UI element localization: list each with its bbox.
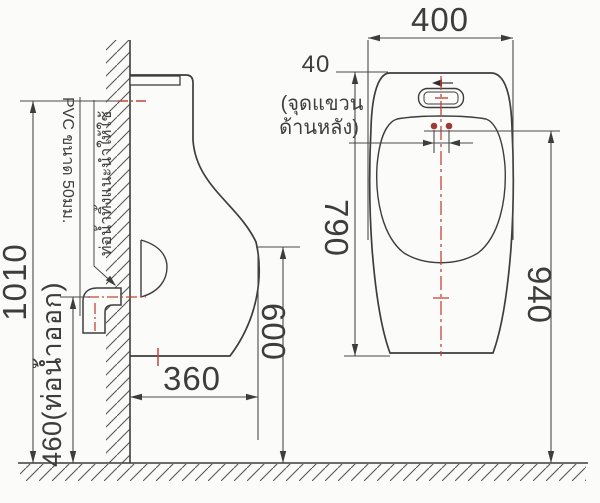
inlet-spud-side <box>130 76 180 85</box>
dim-depth-360: 360 <box>130 252 258 440</box>
drain-recess-side <box>141 240 167 297</box>
pipe-note-line1: ท่อน้ำทิ้งแนะนำให้ใช้ <box>94 111 115 256</box>
dim-940-value: 940 <box>521 266 558 324</box>
hang-note-line1: (จุดแขวน <box>281 93 364 116</box>
pipe-note-line2: PVC ขนาด 50มม. <box>59 97 76 223</box>
dim-rim-height-600: 600 <box>255 247 300 463</box>
dim-460-arrow-bottom <box>70 451 76 463</box>
floor-section <box>18 463 588 481</box>
dim-400-arrow-left <box>368 35 380 41</box>
dim-600-value: 600 <box>255 303 292 361</box>
dim-400-value: 400 <box>411 1 469 38</box>
hang-hole-left <box>431 123 438 130</box>
dim-790-arrow-top <box>352 72 358 84</box>
dim-hang-height-940: 940 <box>424 131 560 463</box>
dim-790-value: 790 <box>318 199 355 257</box>
dim-40-arrow-left <box>423 140 434 146</box>
floor-hatch <box>20 464 586 481</box>
dim-40-arrow-right <box>449 140 460 146</box>
dim-600-arrow-top <box>280 247 286 259</box>
dim-460-value: 460(ท่อน้ำออก) <box>32 282 67 467</box>
dim-40-value: 40 <box>302 51 331 78</box>
technical-drawing-canvas: ท่อน้ำทิ้งแนะนำให้ใช้ PVC ขนาด 50มม. 101… <box>0 0 600 503</box>
urinal-side-profile <box>130 75 259 356</box>
dim-1010-value: 1010 <box>0 243 33 320</box>
dim-790-arrow-bottom <box>352 344 358 356</box>
dim-1010-arrow-bottom <box>30 451 36 463</box>
hang-note-line2: ด้านหลัง) <box>279 117 359 139</box>
dim-940-arrow-bottom <box>548 451 554 463</box>
dim-outlet-height-460: 460(ท่อน้ำออก) <box>32 282 90 467</box>
dim-1010-arrow-top <box>30 101 36 113</box>
urinal-installation-drawing: ท่อน้ำทิ้งแนะนำให้ใช้ PVC ขนาด 50มม. 101… <box>0 0 600 503</box>
hang-hole-right <box>446 123 453 130</box>
dim-400-arrow-right <box>501 35 513 41</box>
front-view <box>370 73 514 356</box>
dim-360-value: 360 <box>163 360 221 397</box>
dim-460-arrow-top <box>70 297 76 309</box>
dim-600-arrow-bottom <box>280 451 286 463</box>
dim-360-arrow-left <box>130 394 142 400</box>
dim-940-arrow-top <box>548 131 554 143</box>
dim-360-arrow-right <box>246 394 258 400</box>
